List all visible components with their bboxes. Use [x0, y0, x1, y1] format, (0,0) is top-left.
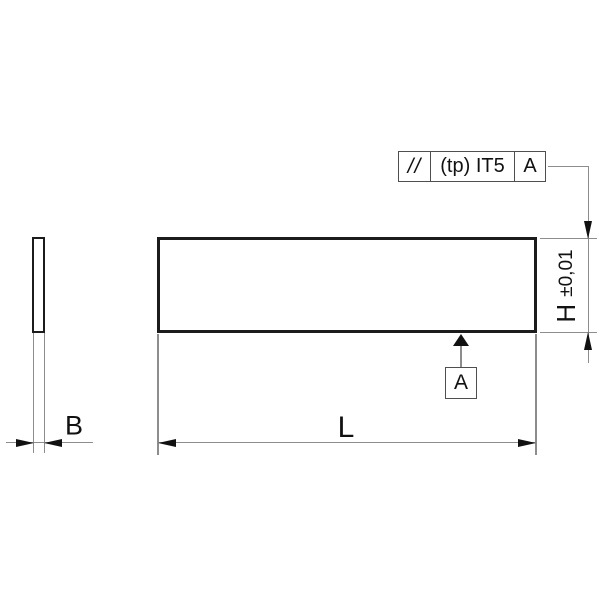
parallelism-icon: // — [399, 152, 430, 181]
l-extension-line-left — [157, 334, 158, 455]
fcf-leader-horizontal — [548, 166, 589, 167]
feature-control-frame: // (tp) IT5 A — [398, 151, 546, 182]
l-arrow-right-icon — [518, 439, 536, 447]
l-extension-line-right — [535, 334, 536, 455]
datum-triangle-icon — [453, 334, 469, 346]
h-dimension-label: H ±0,01 — [552, 226, 580, 346]
b-extension-line-right — [44, 333, 45, 453]
b-dimension-label: B — [65, 411, 83, 442]
h-arrow-top-icon — [584, 221, 592, 239]
l-arrow-left-icon — [158, 439, 176, 447]
h-tolerance: ±0,01 — [557, 249, 576, 296]
side-view-outline — [32, 237, 45, 333]
b-arrow-left-icon — [16, 439, 34, 447]
datum-connector-line — [460, 346, 461, 367]
technical-drawing-canvas: B L H ±0,01 // (tp) IT5 A A — [0, 0, 600, 600]
h-letter: H — [553, 304, 579, 323]
fcf-tolerance-value: (tp) IT5 — [430, 152, 514, 181]
l-dimension-label: L — [338, 411, 355, 445]
fcf-datum-reference: A — [514, 152, 545, 181]
h-arrow-bottom-icon — [584, 332, 592, 350]
b-arrow-right-icon — [44, 439, 62, 447]
front-view-outline — [157, 237, 537, 333]
b-extension-line-left — [33, 333, 34, 453]
datum-box: A — [445, 367, 477, 399]
